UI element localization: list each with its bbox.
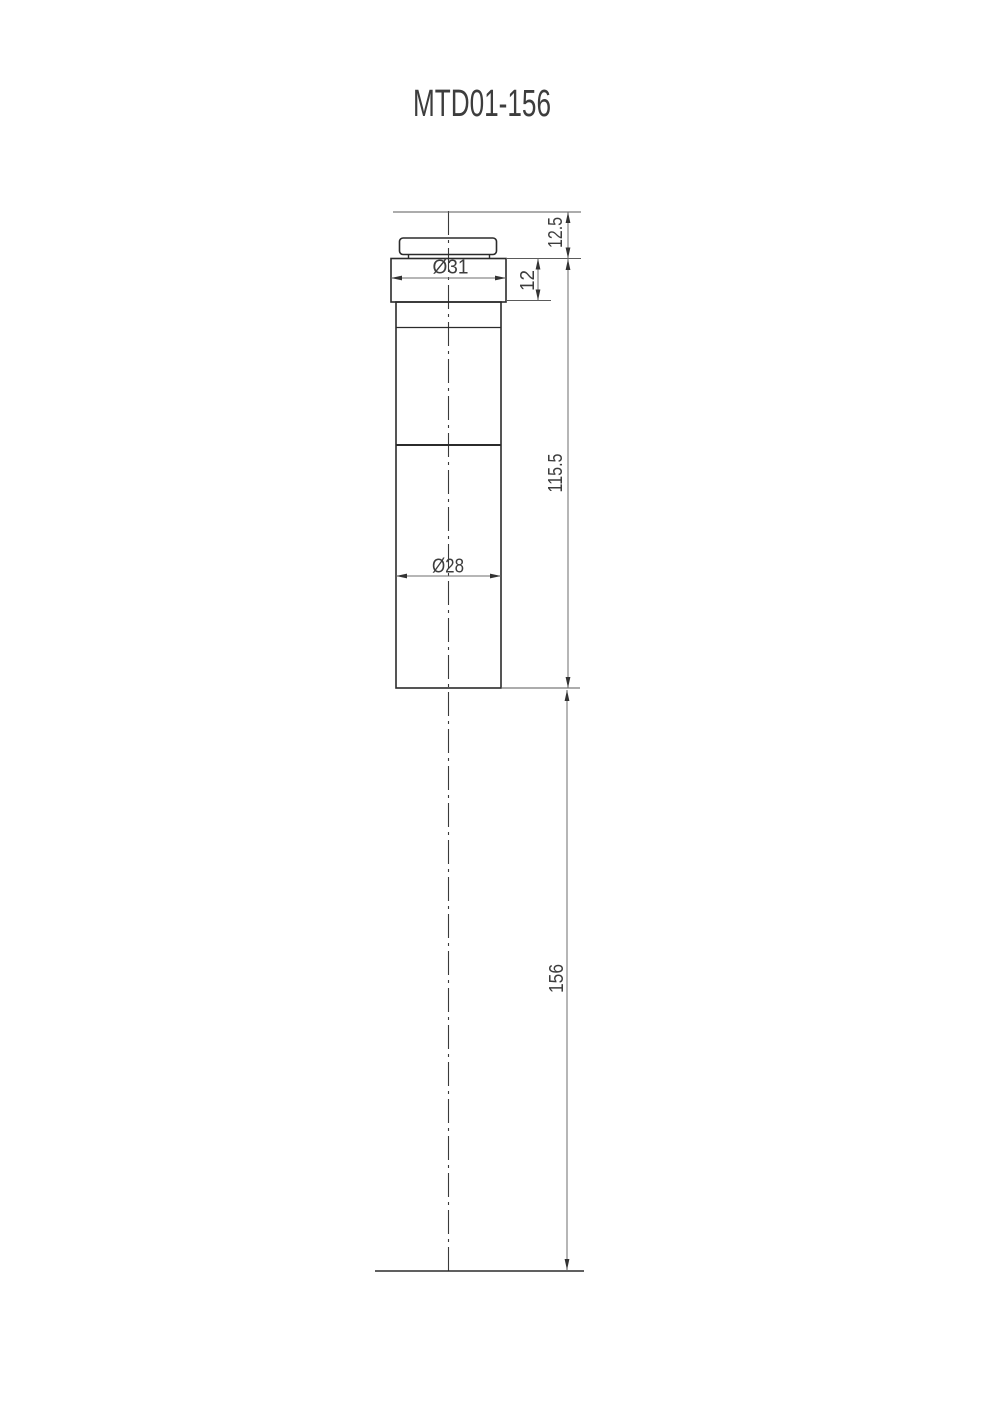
dim-body-length: 115.5 <box>545 259 570 689</box>
arrow-down-icon <box>566 677 571 688</box>
dim-label-rod-length: 156 <box>546 964 568 993</box>
dim-label-top-offset: 12.5 <box>545 217 567 248</box>
extension-lines <box>393 212 581 688</box>
arrow-down-icon <box>566 248 571 259</box>
dim-label-flange-height: 12 <box>517 270 539 291</box>
dim-body-diameter: Ø28 <box>396 556 501 579</box>
drawing-sheet: MTD01-156 Ø31 <box>0 0 992 1403</box>
dim-rod-length: 156 <box>546 690 569 1270</box>
arrow-up-icon <box>565 690 570 701</box>
technical-drawing: MTD01-156 Ø31 <box>0 0 992 1403</box>
arrow-right-icon <box>490 574 501 579</box>
arrow-up-icon <box>566 259 571 270</box>
arrow-left-icon <box>396 574 407 579</box>
dim-label-body-diameter: Ø28 <box>432 556 464 578</box>
dim-top-offset: 12.5 <box>545 212 570 259</box>
dim-flange-diameter: Ø31 <box>391 257 506 281</box>
dim-label-flange-diameter: Ø31 <box>433 257 469 279</box>
part-outline <box>375 238 584 1271</box>
arrow-left-icon <box>391 276 402 281</box>
dim-flange-height: 12 <box>517 259 540 301</box>
arrow-down-icon <box>565 1259 570 1270</box>
arrow-up-icon <box>536 259 541 270</box>
arrow-right-icon <box>495 276 506 281</box>
drawing-title: MTD01-156 <box>413 83 551 125</box>
dim-label-body-length: 115.5 <box>545 454 567 493</box>
